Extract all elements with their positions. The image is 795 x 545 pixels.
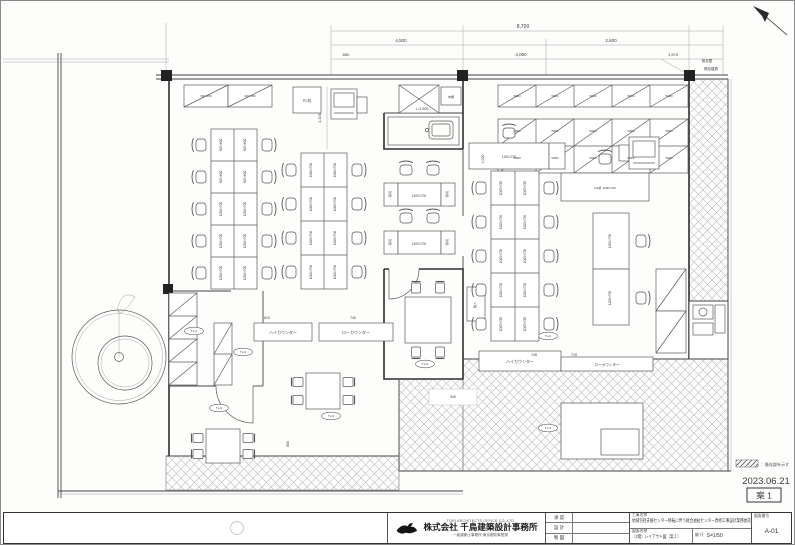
approval-value: [573, 523, 629, 532]
plan-label: W900: [589, 129, 597, 133]
plan-label: 1000×750: [499, 283, 503, 297]
scale-cell: 縮 尺 S=1/50: [692, 529, 751, 544]
plan-label: 810: [264, 316, 270, 320]
plan-label: 1000×700: [333, 197, 337, 211]
plan-label: 脇机: [388, 191, 392, 197]
plan-label: 1000×750: [523, 283, 527, 297]
north-arrow-icon: [753, 6, 787, 35]
plan-label: ローカウンター: [594, 362, 620, 367]
plan-label: W900: [665, 94, 673, 98]
spiral-stair: [72, 295, 166, 404]
plan-label: 1000×700: [333, 265, 337, 279]
plan-label: 中棚: [448, 94, 454, 99]
plan-label: W900: [513, 94, 521, 98]
plan-label: 900×600: [219, 139, 223, 152]
plan-label: 900×450: [245, 94, 256, 98]
plan-label: W900: [627, 129, 635, 133]
plan-label: 1200×700: [412, 194, 426, 198]
plan-label: 1200×700: [412, 242, 426, 246]
approval-label: 製 図: [546, 534, 573, 543]
plan-label: W900: [551, 156, 559, 160]
plan-label: ハイカウンター: [269, 329, 297, 335]
plan-label: 1,570: [668, 52, 679, 57]
plan-label: 745: [531, 353, 537, 357]
plan-label: ローカウンター: [342, 329, 370, 335]
date-text: 2023.06.21: [742, 476, 790, 487]
plan-label: ハイカウンター: [506, 358, 534, 364]
svg-text:TL-6: TL-6: [545, 334, 552, 338]
furniture-tag: TL-6: [210, 404, 229, 412]
approval-label: 設 計: [546, 523, 573, 532]
plan-label: 940: [450, 395, 456, 399]
plan-label: W900: [589, 156, 597, 160]
approval-value: [573, 534, 629, 543]
plan-label: 900×600: [243, 139, 247, 152]
plan-label: 1000×700: [219, 266, 223, 280]
plan-label: 1,100: [317, 112, 322, 123]
drawing-number-cell: 図面番号 A-01: [751, 513, 791, 543]
plan-label: 1000×750: [523, 317, 527, 331]
plan-label: 4,500: [395, 38, 407, 43]
plan-label: OA机 1600×700: [594, 185, 616, 190]
plan-label: 2,600: [605, 38, 617, 43]
approval-label: 承 認: [546, 513, 573, 522]
scale-label: 縮 尺: [695, 533, 704, 538]
plan-label: 1000×700: [243, 234, 247, 248]
plan-label: W900: [513, 129, 521, 133]
plan-label: 1000×700: [243, 266, 247, 280]
plan-label: 850: [343, 52, 350, 57]
plan-label: W900: [513, 156, 521, 160]
plan-label: 脇机: [445, 191, 449, 197]
drawing-row: 図面名称 （2階）レイアウト図（案１） 縮 尺 S=1/50: [630, 529, 751, 544]
plan-label: 8,700: [517, 24, 530, 30]
title-block: TORI ARCHITECTS OFFICE CO.,LTD 株式会社 千鳥建築…: [3, 512, 792, 544]
kitchen-sink: [388, 117, 459, 145]
approval-row: 設 計: [546, 523, 629, 533]
plan-label: 1000×700: [333, 231, 337, 245]
company-logo-bird-icon: [395, 521, 419, 536]
plan-label: L=1,800: [416, 107, 429, 111]
project-name: 地域包括支援センター移転に伴う総合福祉センター改修工事設計業務委託: [632, 518, 728, 525]
plan-label: 1000×700: [243, 202, 247, 216]
plan-label: 1000×750: [499, 215, 503, 229]
svg-text:TL-6: TL-6: [422, 362, 429, 366]
plan-label: W900: [551, 129, 559, 133]
drawing-name: （2階）レイアウト図（案１）: [632, 534, 680, 541]
plan-label: 1200×750: [608, 234, 612, 248]
furniture-tag: TL-6: [539, 332, 558, 340]
stamp-circle: [230, 521, 244, 535]
plan-label: 物入: [472, 302, 477, 308]
plan-label: 既存壁: [702, 58, 713, 63]
approval-value: [573, 513, 629, 522]
plan-label: W900: [665, 129, 673, 133]
plan-label: 1000×700: [219, 234, 223, 248]
plan-label: 1000×750: [499, 181, 503, 195]
furniture-tag: TL-6: [234, 348, 253, 356]
plan-label: 1,000: [481, 155, 485, 164]
furniture-tag: TL-5: [322, 412, 341, 420]
plan-label: 1000×700: [309, 265, 313, 279]
svg-text:TL-5: TL-5: [328, 414, 335, 418]
project-row: 工事名称 地域包括支援センター移転に伴う総合福祉センター改修工事設計業務委託: [630, 513, 751, 529]
plan-label: PC机: [303, 98, 312, 103]
drawing-sheet: ：既存部を示す 2023.06.21 案 1 900×600900×600900…: [0, 0, 795, 545]
company-name: 株式会社 千鳥建築設計事務所: [423, 523, 537, 533]
plan-label: 1000×750: [499, 317, 503, 331]
title-block-blank: [4, 513, 388, 543]
plan-label: W900: [665, 156, 673, 160]
plan-label: 脇机: [388, 239, 392, 245]
drawing-number-value: A-01: [752, 519, 791, 543]
svg-text:TL-6: TL-6: [216, 406, 223, 410]
plan-label: 4,000: [515, 52, 527, 57]
plan-label: 1000×750: [523, 181, 527, 195]
svg-text:TL-3: TL-3: [545, 426, 552, 430]
plan-label: 740: [350, 316, 356, 320]
counters: [254, 323, 653, 371]
plan-label: 既存建具: [704, 66, 718, 71]
project-cell: 工事名称 地域包括支援センター移転に伴う総合福祉センター改修工事設計業務委託: [630, 513, 751, 528]
plan-label: 900×450: [201, 94, 212, 98]
plan-label: W900: [627, 94, 635, 98]
svg-text:TL-4: TL-4: [191, 329, 198, 333]
approval-table: 承 認 設 計 製 図: [546, 513, 630, 543]
scale-value: S=1/50: [707, 533, 723, 539]
title-main: 工事名称 地域包括支援センター移転に伴う総合福祉センター改修工事設計業務委託 図…: [630, 513, 751, 543]
svg-text:TL-6: TL-6: [240, 350, 247, 354]
stamp: 案 1: [747, 488, 781, 502]
plan-label: 1000×700: [333, 163, 337, 177]
plan-label: 1000×750: [499, 249, 503, 263]
plan-label: 1000×700: [309, 197, 313, 211]
plan-label: 800: [286, 441, 290, 447]
plan-label: 1000×750: [523, 249, 527, 263]
plan-label: 1000×700: [309, 163, 313, 177]
plan-label: 900×600: [243, 171, 247, 184]
company-section: TORI ARCHITECTS OFFICE CO.,LTD 株式会社 千鳥建築…: [388, 513, 546, 543]
plan-label: 1000×750: [523, 215, 527, 229]
stamp-label: 案 1: [756, 491, 772, 501]
plan-label: W900: [589, 94, 597, 98]
furniture-tag: TL-3: [539, 424, 558, 432]
plan-label: 1000×700: [309, 231, 313, 245]
legend-text: ：既存部を示す: [761, 461, 789, 467]
approval-row: 承 認: [546, 513, 629, 523]
floor-plan: ：既存部を示す 2023.06.21 案 1 900×600900×600900…: [1, 1, 795, 545]
plan-label: 715: [571, 353, 577, 357]
sanitary-room: [689, 301, 728, 359]
furniture-tag: TL-4: [185, 327, 204, 335]
legend: ：既存部を示す: [736, 460, 789, 467]
plan-label: 脇机: [445, 239, 449, 245]
drawing-cell: 図面名称 （2階）レイアウト図（案１）: [630, 529, 692, 544]
furniture-tag: TL-6: [416, 360, 435, 368]
copier-left: [331, 89, 367, 119]
plan-label: 1000×700: [219, 202, 223, 216]
plan-label: 900×600: [219, 171, 223, 184]
plan-label: W900: [627, 156, 635, 160]
company-subtitle: 一級建築士事務所 東京都知事登録: [423, 533, 537, 537]
approval-row: 製 図: [546, 534, 629, 543]
plan-label: 1200×750: [608, 291, 612, 305]
plan-label: W900: [551, 94, 559, 98]
